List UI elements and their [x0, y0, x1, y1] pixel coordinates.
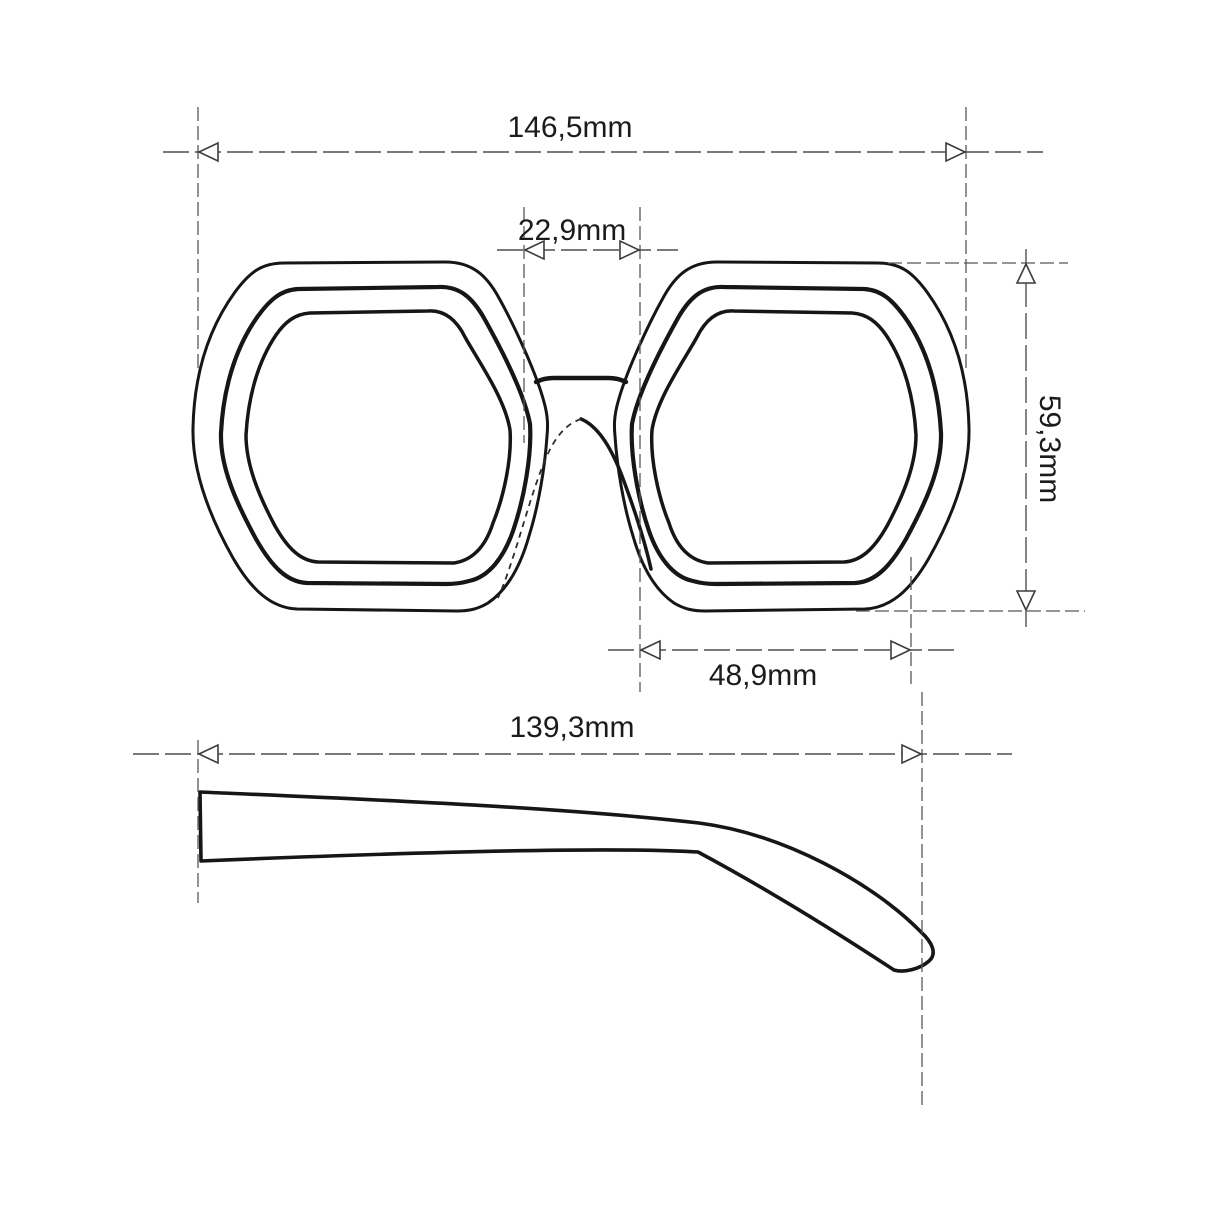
dimension-lens-height: 59,3mm	[856, 249, 1085, 628]
bridge-top-bar	[536, 378, 626, 382]
left-lens-inner-outline	[246, 311, 510, 563]
right-lens-middle-outline	[632, 287, 941, 584]
drawing-svg: 146,5mm 22,9mm 59,3mm 48,9mm	[0, 0, 1214, 1214]
arrowhead-left-icon	[641, 641, 660, 659]
dimension-temple-length: 139,3mm	[133, 692, 1012, 1108]
arrowhead-left-icon	[199, 143, 218, 161]
dimension-label-bridge-width: 22,9mm	[518, 214, 626, 247]
dimension-lens-width: 48,9mm	[608, 557, 958, 692]
right-lens-inner-outline	[652, 311, 916, 563]
arrowhead-down-icon	[1017, 591, 1035, 610]
side-view	[200, 792, 933, 971]
arrowhead-right-icon	[946, 143, 965, 161]
temple-outline	[200, 792, 933, 971]
left-lens-middle-outline	[221, 287, 530, 584]
eyewear-technical-drawing: 146,5mm 22,9mm 59,3mm 48,9mm	[0, 0, 1214, 1214]
dimension-label-total-width: 146,5mm	[507, 111, 632, 144]
dimension-label-lens-width: 48,9mm	[709, 659, 817, 692]
arrowhead-left-icon	[199, 745, 218, 763]
arrowhead-right-icon	[902, 745, 921, 763]
dimension-label-lens-height: 59,3mm	[1033, 395, 1066, 503]
arrowhead-right-icon	[891, 641, 910, 659]
dimension-label-temple-length: 139,3mm	[509, 711, 634, 744]
front-view	[193, 262, 969, 611]
arrowhead-up-icon	[1017, 264, 1035, 283]
